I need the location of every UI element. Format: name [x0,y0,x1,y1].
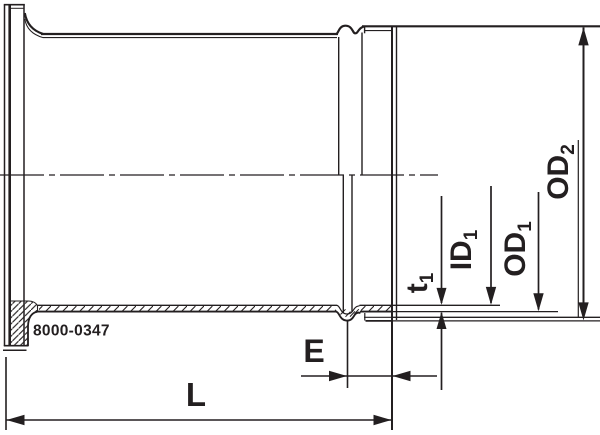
t1-arrow-down [437,288,447,305]
dimension-OD2: OD2 [542,27,589,320]
technical-drawing-canvas: L E t1 ID1 OD1 [0,0,600,435]
bead-top-profile [336,26,364,34]
dimension-E: E [301,322,437,389]
flange-top-fillet [25,13,43,34]
L-label: L [186,376,206,413]
tube-bottom-wall-hatch [39,306,336,311]
expanded-end [362,26,600,430]
ID1-arrow-down [486,287,496,305]
t1-label: t1 [401,272,438,293]
tube-bottom-wall-hatch-right [361,306,391,311]
ID1-label: ID1 [445,229,482,270]
part-number-label: 8000-0347 [33,323,110,340]
bead-bottom-outer-profile [336,312,361,321]
dimension-OD1: OD1 [499,192,544,311]
E-arrow-right [393,371,411,381]
OD1-arrow-down [533,293,543,311]
L-arrow-right [374,415,392,425]
OD2-label: OD2 [542,144,579,200]
L-arrow-left [7,415,25,425]
dimension-t1: t1 [401,196,447,390]
OD2-arrow-up [578,27,588,45]
E-arrow-left [329,371,347,381]
dimension-ID1: ID1 [445,186,496,305]
OD1-label: OD1 [499,221,536,277]
dimension-L: L [6,357,392,430]
bead-ring [336,26,364,321]
liner-drawing-svg: L E t1 ID1 OD1 [0,0,600,435]
E-label: E [303,333,324,369]
flange [3,5,43,351]
